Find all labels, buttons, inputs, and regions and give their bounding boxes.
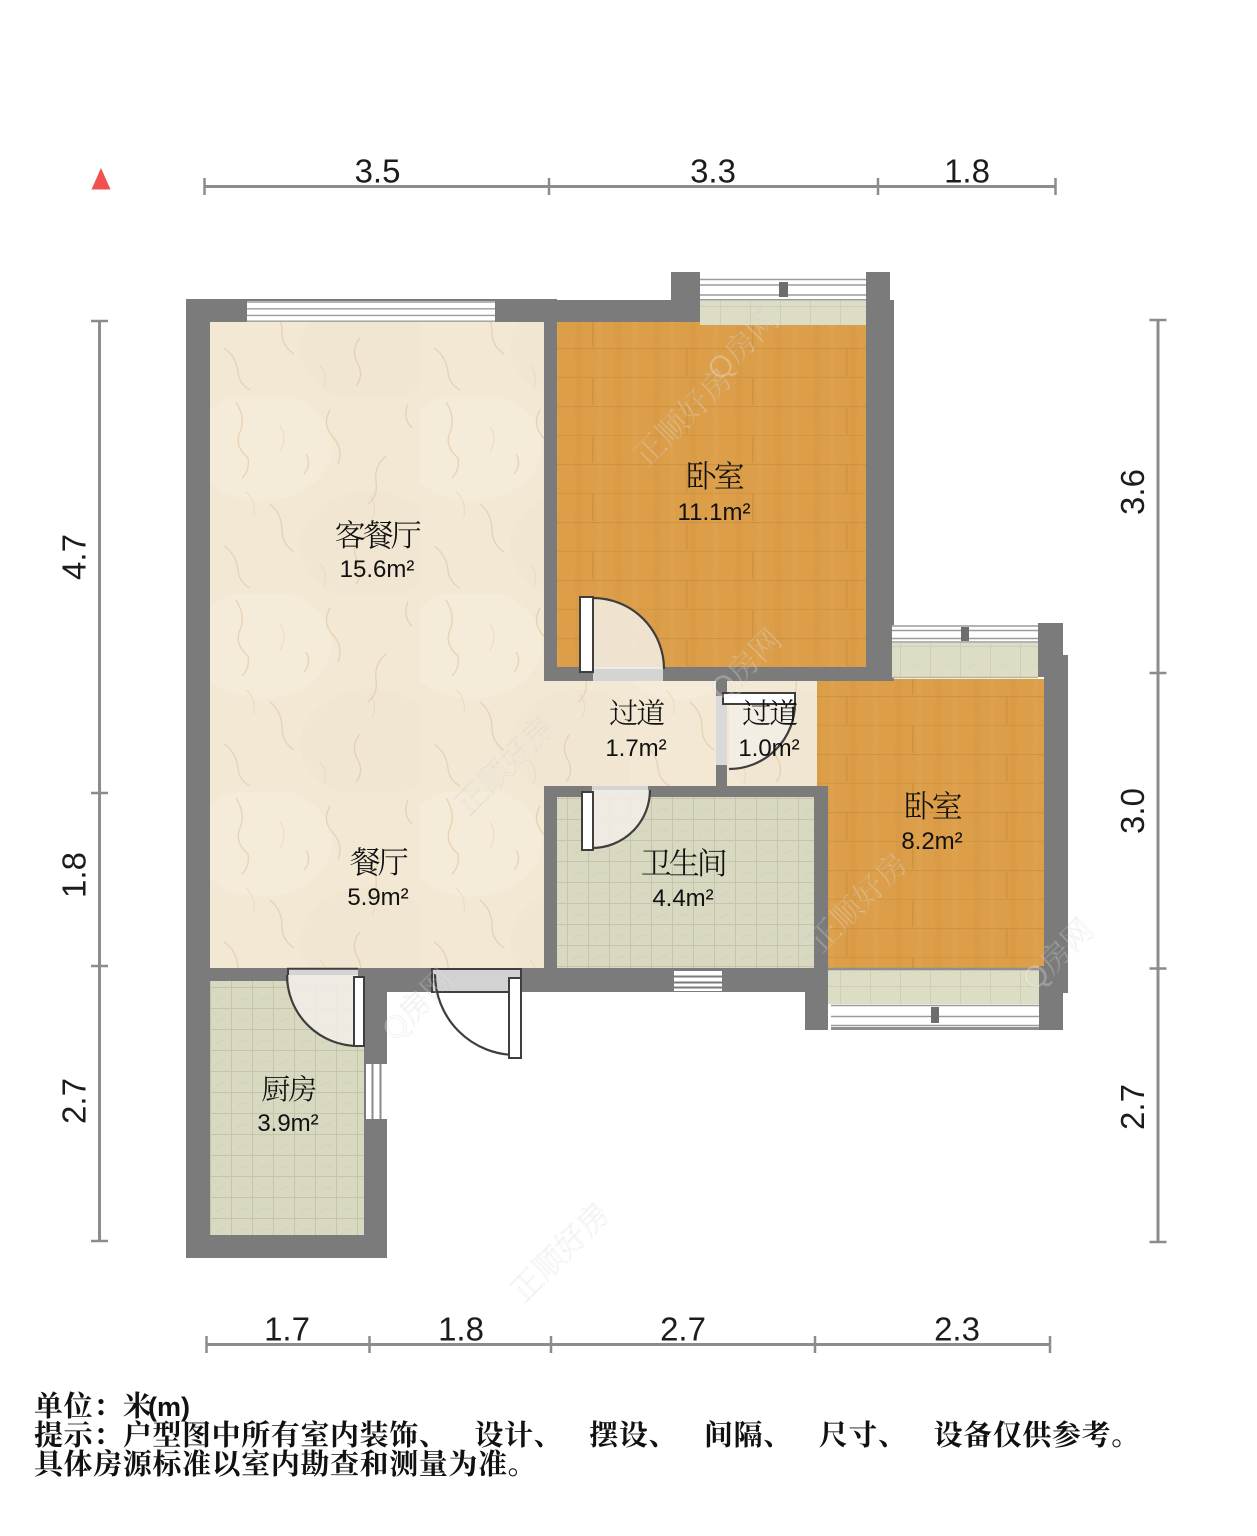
svg-text:1.8: 1.8 [944, 153, 990, 190]
svg-text:1.8: 1.8 [56, 852, 93, 898]
svg-text:3.3: 3.3 [690, 153, 736, 190]
svg-text:2.7: 2.7 [1114, 1084, 1151, 1130]
svg-text:4.4m²: 4.4m² [652, 885, 713, 912]
svg-text:(m): (m) [148, 1392, 190, 1422]
svg-text:15.6m²: 15.6m² [340, 556, 415, 583]
svg-text:3.0: 3.0 [1114, 788, 1151, 834]
svg-text:4.7: 4.7 [56, 534, 93, 580]
svg-text:1.7m²: 1.7m² [605, 735, 666, 762]
svg-text:2.7: 2.7 [56, 1078, 93, 1124]
svg-text:2.3: 2.3 [934, 1311, 980, 1348]
svg-text:3.5: 3.5 [355, 153, 401, 190]
svg-text:3.6: 3.6 [1114, 469, 1151, 515]
svg-text:3.9m²: 3.9m² [257, 1110, 318, 1137]
svg-text:2.7: 2.7 [660, 1311, 706, 1348]
svg-text:11.1m²: 11.1m² [678, 499, 751, 526]
svg-text:5.9m²: 5.9m² [347, 884, 408, 911]
svg-text:8.2m²: 8.2m² [901, 828, 962, 855]
svg-text:1.0m²: 1.0m² [738, 735, 799, 762]
svg-text:1.8: 1.8 [438, 1311, 484, 1348]
svg-text:1.7: 1.7 [264, 1311, 310, 1348]
